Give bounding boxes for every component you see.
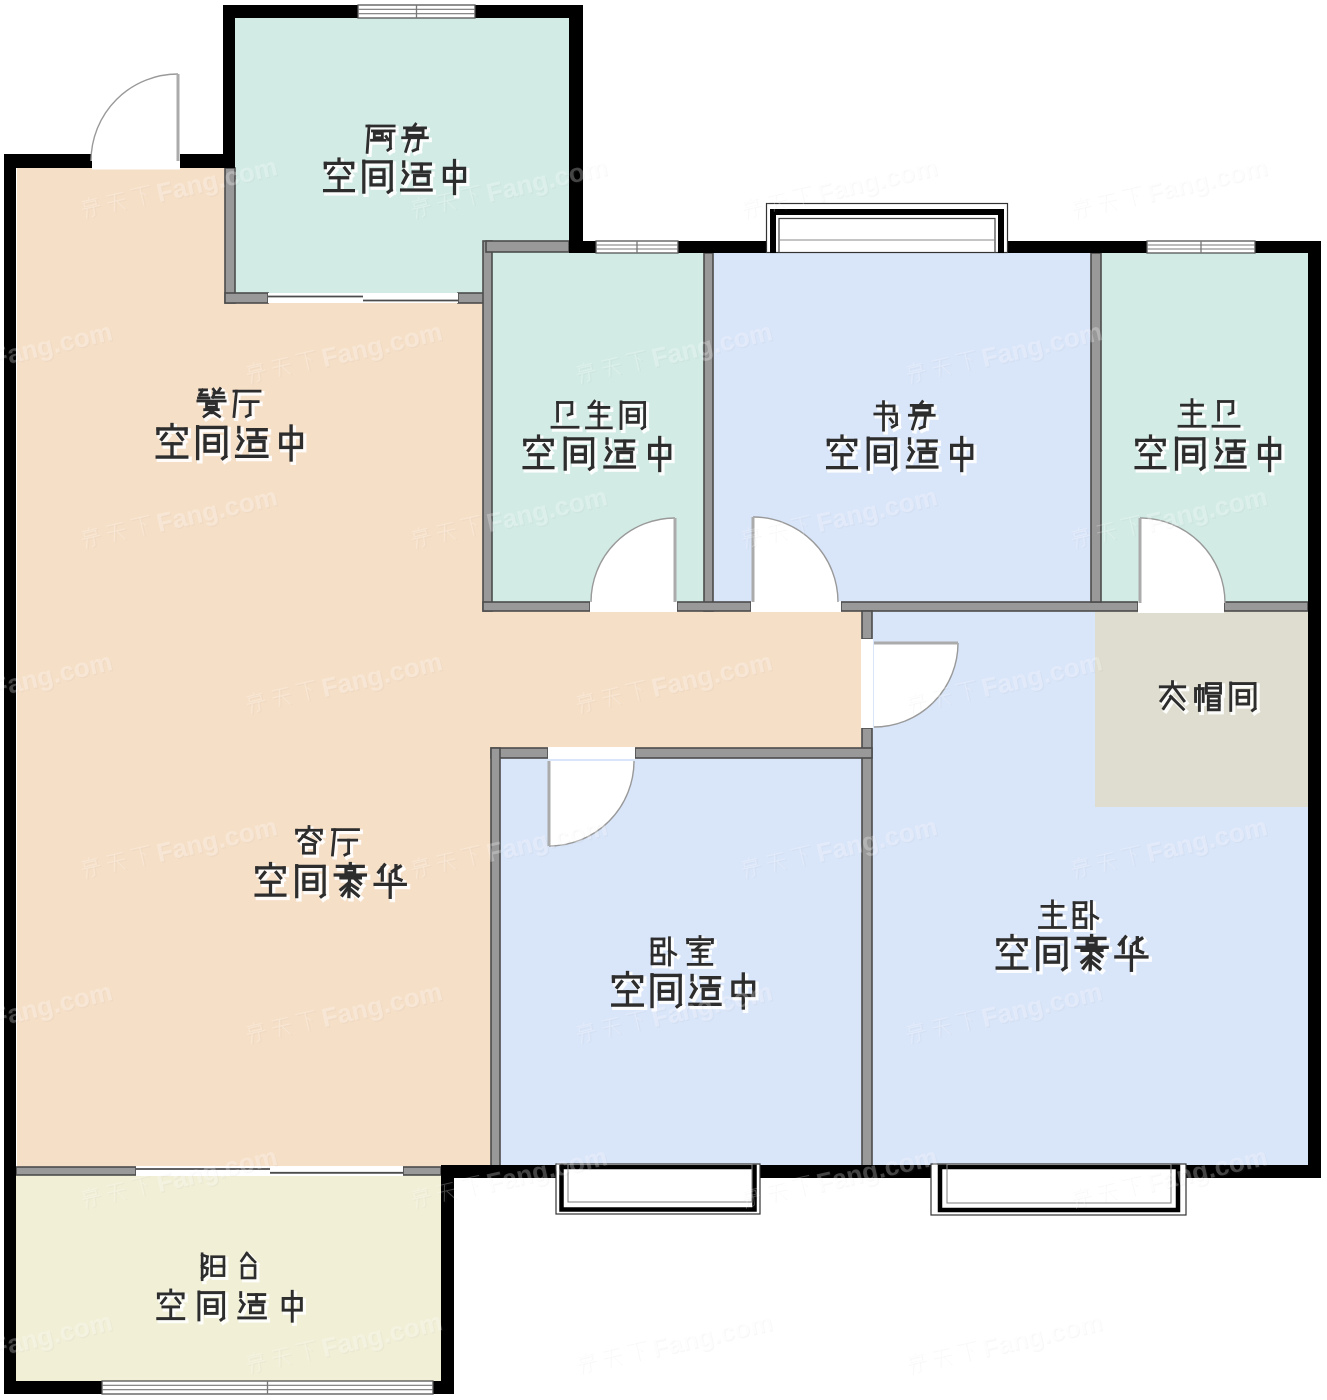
svg-text:Fang.com: Fang.com	[1144, 151, 1270, 208]
svg-text:Fang.com: Fang.com	[649, 1306, 775, 1363]
svg-text:Fang.com: Fang.com	[814, 151, 940, 208]
svg-text:Fang.com: Fang.com	[979, 1306, 1105, 1363]
